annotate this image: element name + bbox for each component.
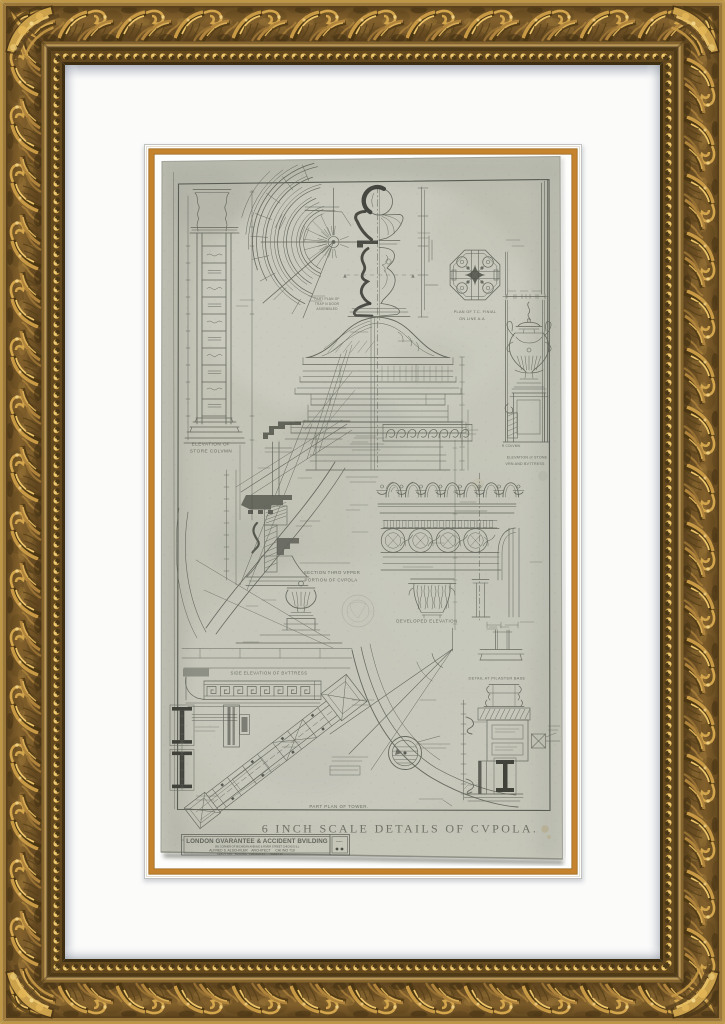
svg-text:ALFRED S. ALSCHVLER ARCHITE: ALFRED S. ALSCHVLER ARCHITECT CHI./NO 71…	[209, 849, 295, 853]
svg-text:ELEVATION of STONE: ELEVATION of STONE	[507, 456, 548, 460]
svg-text:ELEVATION OF: ELEVATION OF	[192, 442, 231, 447]
svg-text:PART PLAN OF: PART PLAN OF	[314, 297, 339, 301]
svg-text:DEVELOPED ELEVATION: DEVELOPED ELEVATION	[396, 619, 458, 624]
svg-text:VRN AND BVTTRESS: VRN AND BVTTRESS	[505, 462, 545, 466]
svg-text:LONDON GVARANTEE & ACCIDENT BV: LONDON GVARANTEE & ACCIDENT BVILDING	[186, 838, 328, 845]
svg-text:DETAIL AT PILASTER BASE: DETAIL AT PILASTER BASE	[469, 676, 526, 681]
svg-text:6 INCH SCALE DETAILS OF CVPOLA: 6 INCH SCALE DETAILS OF CVPOLA.	[262, 822, 539, 836]
svg-text:ASSEMBLED: ASSEMBLED	[316, 307, 338, 311]
svg-text:SHEET: SHEET	[336, 841, 344, 843]
svg-text:TRAP N DOOR: TRAP N DOOR	[315, 302, 340, 306]
svg-text:SECTION THRO VPPER: SECTION THRO VPPER	[304, 570, 360, 575]
svg-text:PORTION OF CVPOLA: PORTION OF CVPOLA	[304, 578, 357, 583]
svg-text:PLAN OF T.C. FINIAL: PLAN OF T.C. FINIAL	[454, 310, 497, 314]
svg-text:SIDE ELEVATION OF BVTTRESS: SIDE ELEVATION OF BVTTRESS	[230, 671, 307, 676]
svg-text:R COLVMN: R COLVMN	[502, 444, 521, 448]
svg-text:ON LINE A-A: ON LINE A-A	[459, 317, 485, 321]
svg-text:FEB 21 1921 BVILDING CHICA: FEB 21 1921 BVILDING CHICAGO ILL SHEET 4…	[217, 852, 283, 856]
svg-text:PART PLAN OF TOWER.: PART PLAN OF TOWER.	[309, 804, 368, 809]
svg-text:STORE COLVMN: STORE COLVMN	[190, 449, 232, 454]
